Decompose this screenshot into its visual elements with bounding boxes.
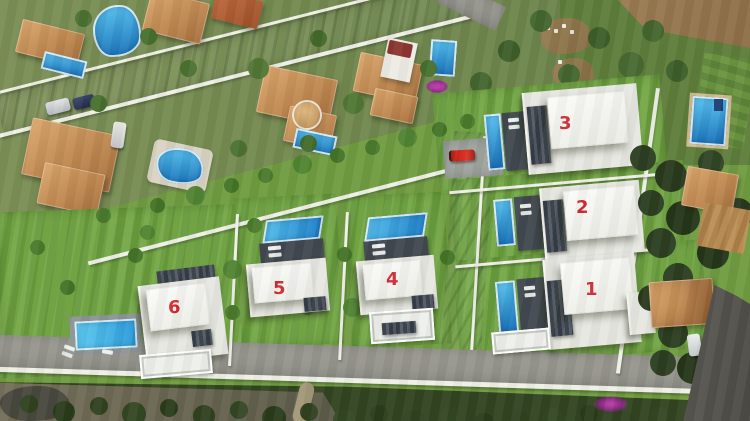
tiled-patio-east [697,202,750,254]
existing-house-southeast [648,278,715,328]
red-car [449,149,476,161]
villa-6-label: 6 [168,299,181,317]
villa-6-stairs [191,329,213,347]
villa-3-label: 3 [559,115,572,133]
villa-2-label: 2 [576,199,589,217]
palm-tree-cluster-northwest [75,10,92,27]
lagoon-pool [93,5,141,57]
villa-5-label: 5 [273,280,286,298]
bougainvillea-bush [426,80,448,93]
dirt-patch [540,18,592,54]
neighbor-pool [429,39,457,77]
aerial-photo: 3 2 1 5 [0,0,750,421]
pool-cover-east [714,99,723,111]
villa-4-label: 4 [386,271,399,289]
villa-5-stairs [303,296,326,312]
neighbor-pool-east [686,93,732,150]
palm-row-development [96,208,111,223]
garden-furniture [546,26,550,30]
vegetation-band [20,395,38,413]
villa-4-garage [382,321,417,335]
villa-2-roof [563,185,639,241]
bougainvillea-bush [594,396,628,412]
turret-roof [294,102,320,128]
dark-tree-cluster-southeast [630,145,656,171]
villa-2-pool [493,198,516,246]
villa-1-label: 1 [585,281,598,299]
